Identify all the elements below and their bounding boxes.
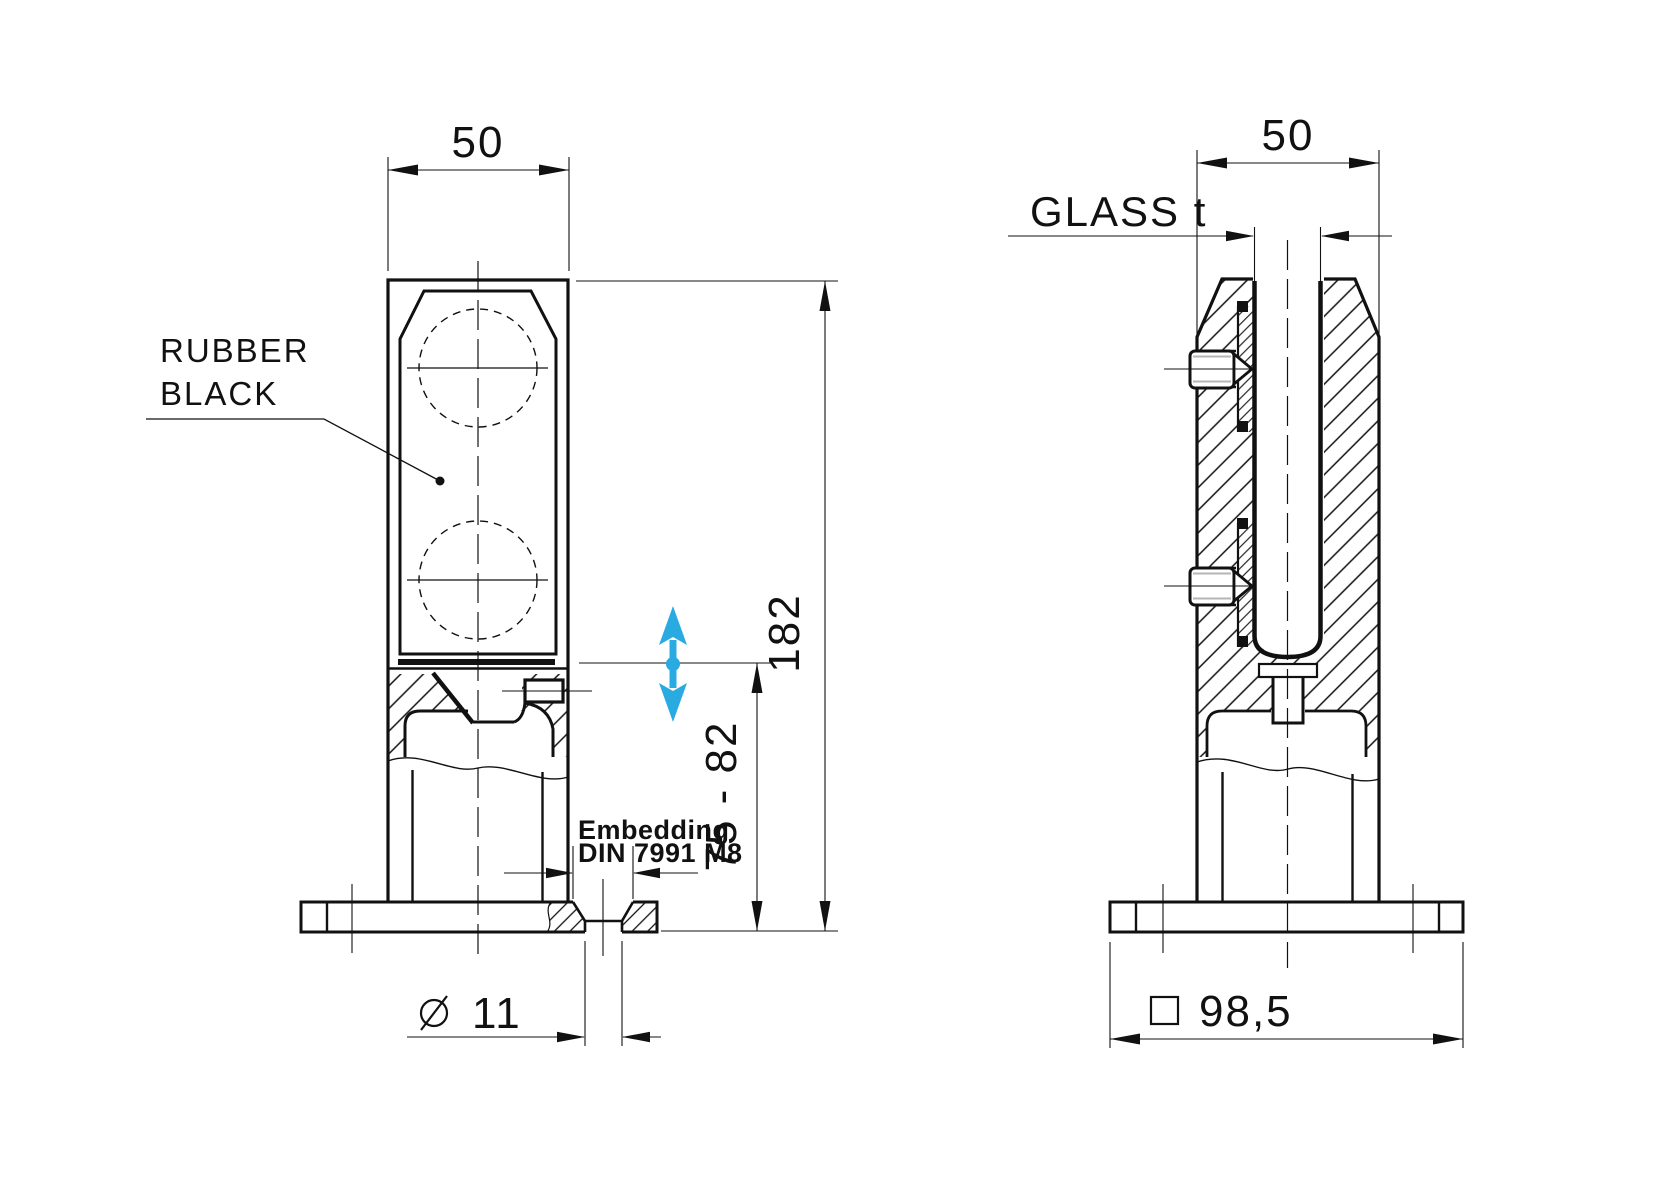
arrow-down-icon: [752, 901, 763, 931]
leader-dot: [436, 477, 445, 486]
arrow-right-icon: [539, 165, 569, 176]
technical-drawing: 50 182 75 - 82 Embedding DIN 7991 M8: [0, 0, 1680, 1189]
base-width-value: 98,5: [1199, 987, 1293, 1036]
side-base-plate: [1110, 884, 1463, 953]
leader-line: [146, 419, 440, 481]
glass-thickness-label: GLASS t: [1030, 188, 1207, 235]
arrow-right-icon: [1349, 158, 1379, 169]
hole-diameter-dimension: 11: [407, 941, 661, 1046]
hole-diameter-value: 11: [472, 989, 522, 1038]
arrow-up-icon: [820, 281, 831, 311]
arrow-left-icon: [1110, 1034, 1140, 1045]
arrow-right-icon: [1433, 1034, 1463, 1045]
side-view: [1110, 240, 1463, 968]
embedding-dimension: Embedding DIN 7991 M8: [504, 815, 743, 899]
arrow-left-icon: [622, 1032, 650, 1042]
embedding-note-line2: DIN 7991 M8: [578, 838, 743, 868]
arrow-right-icon: [1226, 231, 1254, 241]
arrow-left-icon: [388, 165, 418, 176]
arrow-right-icon: [557, 1032, 585, 1042]
arrow-left-icon: [1321, 231, 1349, 241]
overall-height-value: 182: [760, 593, 809, 672]
base-width-dimension: 98,5: [1110, 942, 1463, 1048]
front-base-plate: [301, 879, 657, 956]
arrow-left-icon: [633, 868, 660, 878]
height-adjust-arrow-icon: [659, 606, 687, 722]
rubber-note-line1: RUBBER: [160, 332, 310, 369]
arrow-down-icon: [820, 901, 831, 931]
diameter-icon: [421, 996, 447, 1030]
glass-thickness-dimension: GLASS t: [1008, 188, 1392, 282]
front-width-dimension: 50: [388, 118, 569, 271]
arrow-left-icon: [1197, 158, 1227, 169]
side-width-value: 50: [1262, 111, 1315, 160]
front-width-value: 50: [452, 118, 505, 167]
rubber-note-line2: BLACK: [160, 375, 278, 412]
square-icon: [1151, 997, 1178, 1024]
